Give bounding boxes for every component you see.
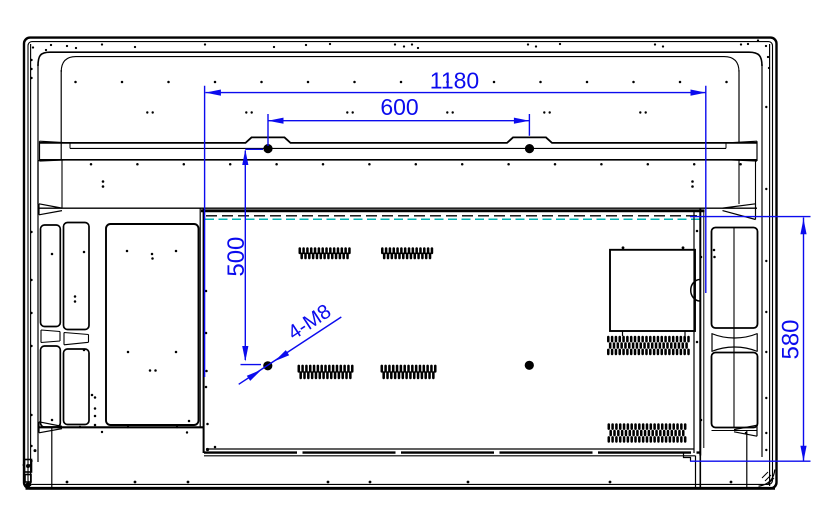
svg-text:500: 500 bbox=[223, 237, 250, 277]
svg-text:600: 600 bbox=[380, 94, 418, 120]
svg-text:580: 580 bbox=[778, 319, 805, 359]
svg-text:1180: 1180 bbox=[430, 68, 479, 94]
